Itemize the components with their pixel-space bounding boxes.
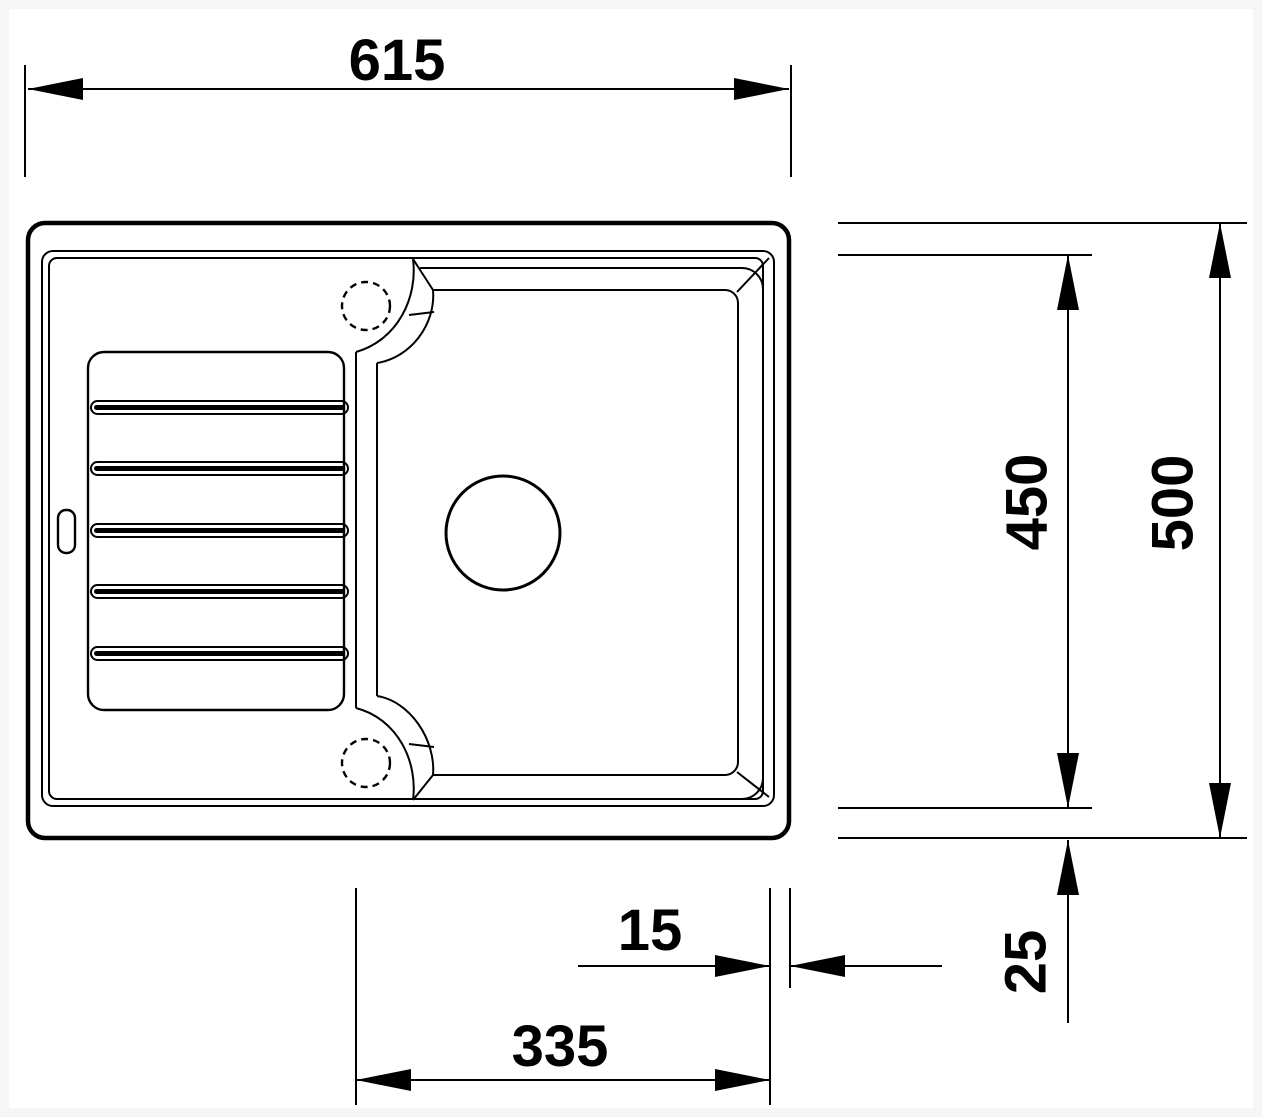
dim-bottom-rim-offset-label: 25	[993, 930, 1058, 995]
arrowhead-right	[715, 955, 770, 977]
dim-overall-width-label: 615	[349, 28, 446, 93]
drainboard-rib	[91, 401, 348, 414]
dimension-right-rim-offset: 15	[578, 888, 942, 1105]
arrowhead-up	[1209, 223, 1231, 278]
overflow-slot	[58, 510, 75, 553]
arrowhead-left	[28, 78, 83, 100]
dimension-bowl-width: 335	[356, 888, 770, 1105]
drainboard-rib	[91, 524, 348, 537]
drainboard-rib	[91, 647, 348, 660]
arrowhead-right	[734, 78, 789, 100]
drain-hole	[446, 476, 560, 590]
arrowhead-up	[1057, 255, 1079, 310]
drainboard	[88, 352, 348, 710]
arrowhead-down	[1209, 783, 1231, 838]
dimension-overall-width: 615	[25, 28, 791, 177]
bowl-inner-edge	[433, 290, 738, 775]
drainboard-rib	[91, 585, 348, 598]
sink-bowl	[356, 258, 769, 800]
dimension-inner-depth: 450	[838, 255, 1092, 808]
drainboard-rib	[91, 462, 348, 475]
dim-right-rim-offset-label: 15	[618, 898, 683, 963]
bowl-bevel-diagonal-top-right	[737, 258, 769, 292]
arrowhead-right	[715, 1069, 770, 1091]
bowl-shoulder-bottom	[356, 696, 434, 800]
dimension-bottom-rim-offset: 25	[993, 840, 1079, 1023]
bowl-outer-edge	[420, 268, 763, 799]
bowl-bevel-diagonal-bottom-right	[737, 772, 769, 797]
arrowhead-down	[1057, 753, 1079, 808]
tap-hole-bottom	[342, 739, 390, 787]
drawing-canvas: 615 500 450 25 15 33	[0, 0, 1262, 1117]
arrowhead-left	[790, 955, 845, 977]
sink-technical-drawing: 615 500 450 25 15 33	[0, 0, 1262, 1117]
dim-overall-depth-label: 500	[1140, 455, 1205, 552]
arrowhead-left	[356, 1069, 411, 1091]
dim-bowl-width-label: 335	[512, 1014, 609, 1079]
bowl-shoulder-top	[356, 259, 434, 363]
dim-inner-depth-label: 450	[994, 454, 1059, 551]
arrowhead-up	[1057, 840, 1079, 895]
tap-hole-top	[342, 282, 390, 330]
